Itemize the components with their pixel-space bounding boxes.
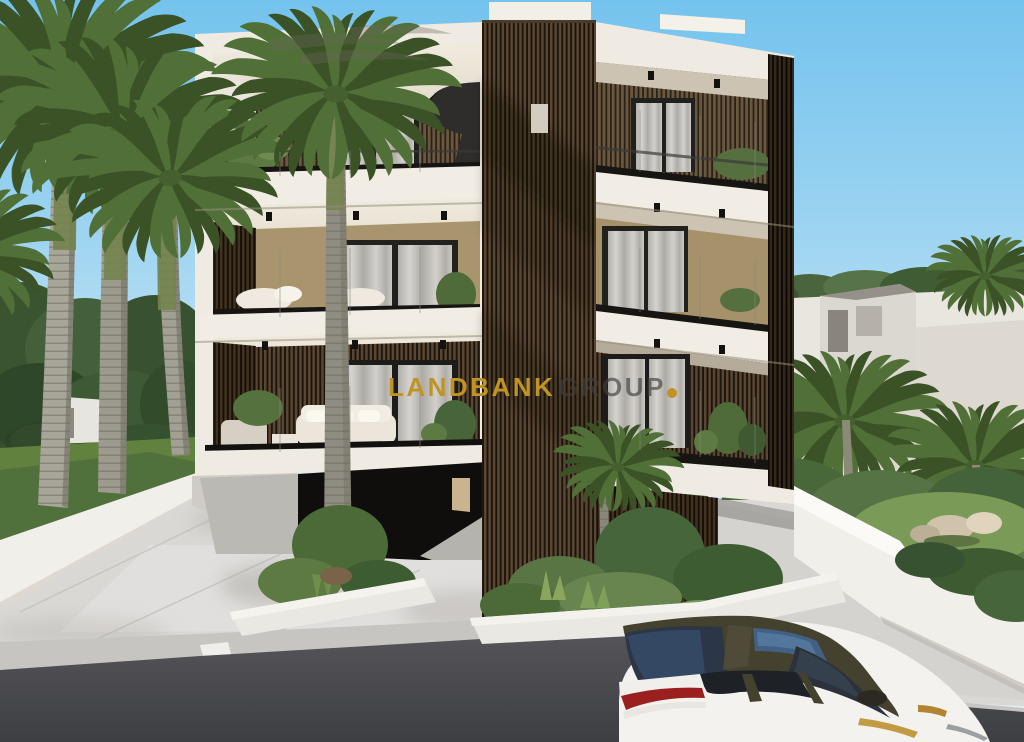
- svg-text:LANDBANK: LANDBANK: [388, 372, 555, 402]
- svg-text:GROUP: GROUP: [558, 372, 666, 402]
